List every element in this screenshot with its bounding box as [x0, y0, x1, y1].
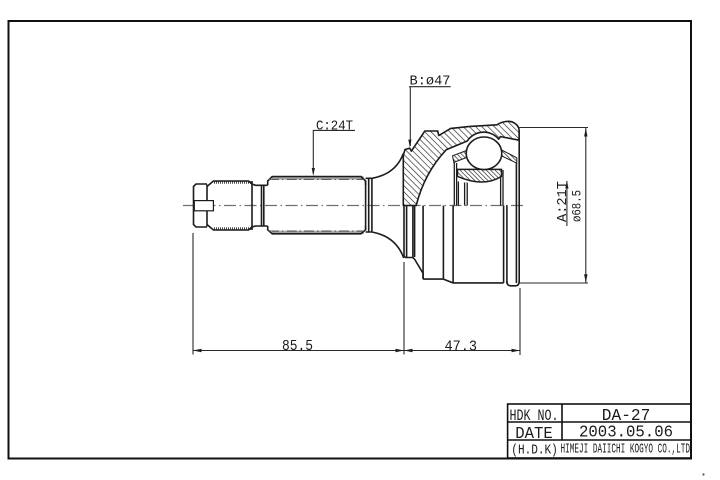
svg-text:DATE: DATE — [515, 425, 553, 444]
svg-text:C:24T: C:24T — [316, 119, 353, 135]
svg-text:(H.D.K): (H.D.K) — [511, 444, 558, 459]
svg-text:B:ø47: B:ø47 — [410, 74, 451, 90]
svg-text:ø68.5: ø68.5 — [570, 190, 585, 222]
svg-text:85.5: 85.5 — [282, 338, 313, 355]
svg-text:HIMEJI DAIICHI KOGYO CO.,LTD: HIMEJI DAIICHI KOGYO CO.,LTD — [561, 441, 691, 457]
svg-text:DA-27: DA-27 — [602, 406, 651, 425]
svg-text:47.3: 47.3 — [445, 339, 478, 356]
svg-text:HDK NO.: HDK NO. — [510, 407, 559, 425]
svg-text:2003.05.06: 2003.05.06 — [579, 424, 673, 443]
